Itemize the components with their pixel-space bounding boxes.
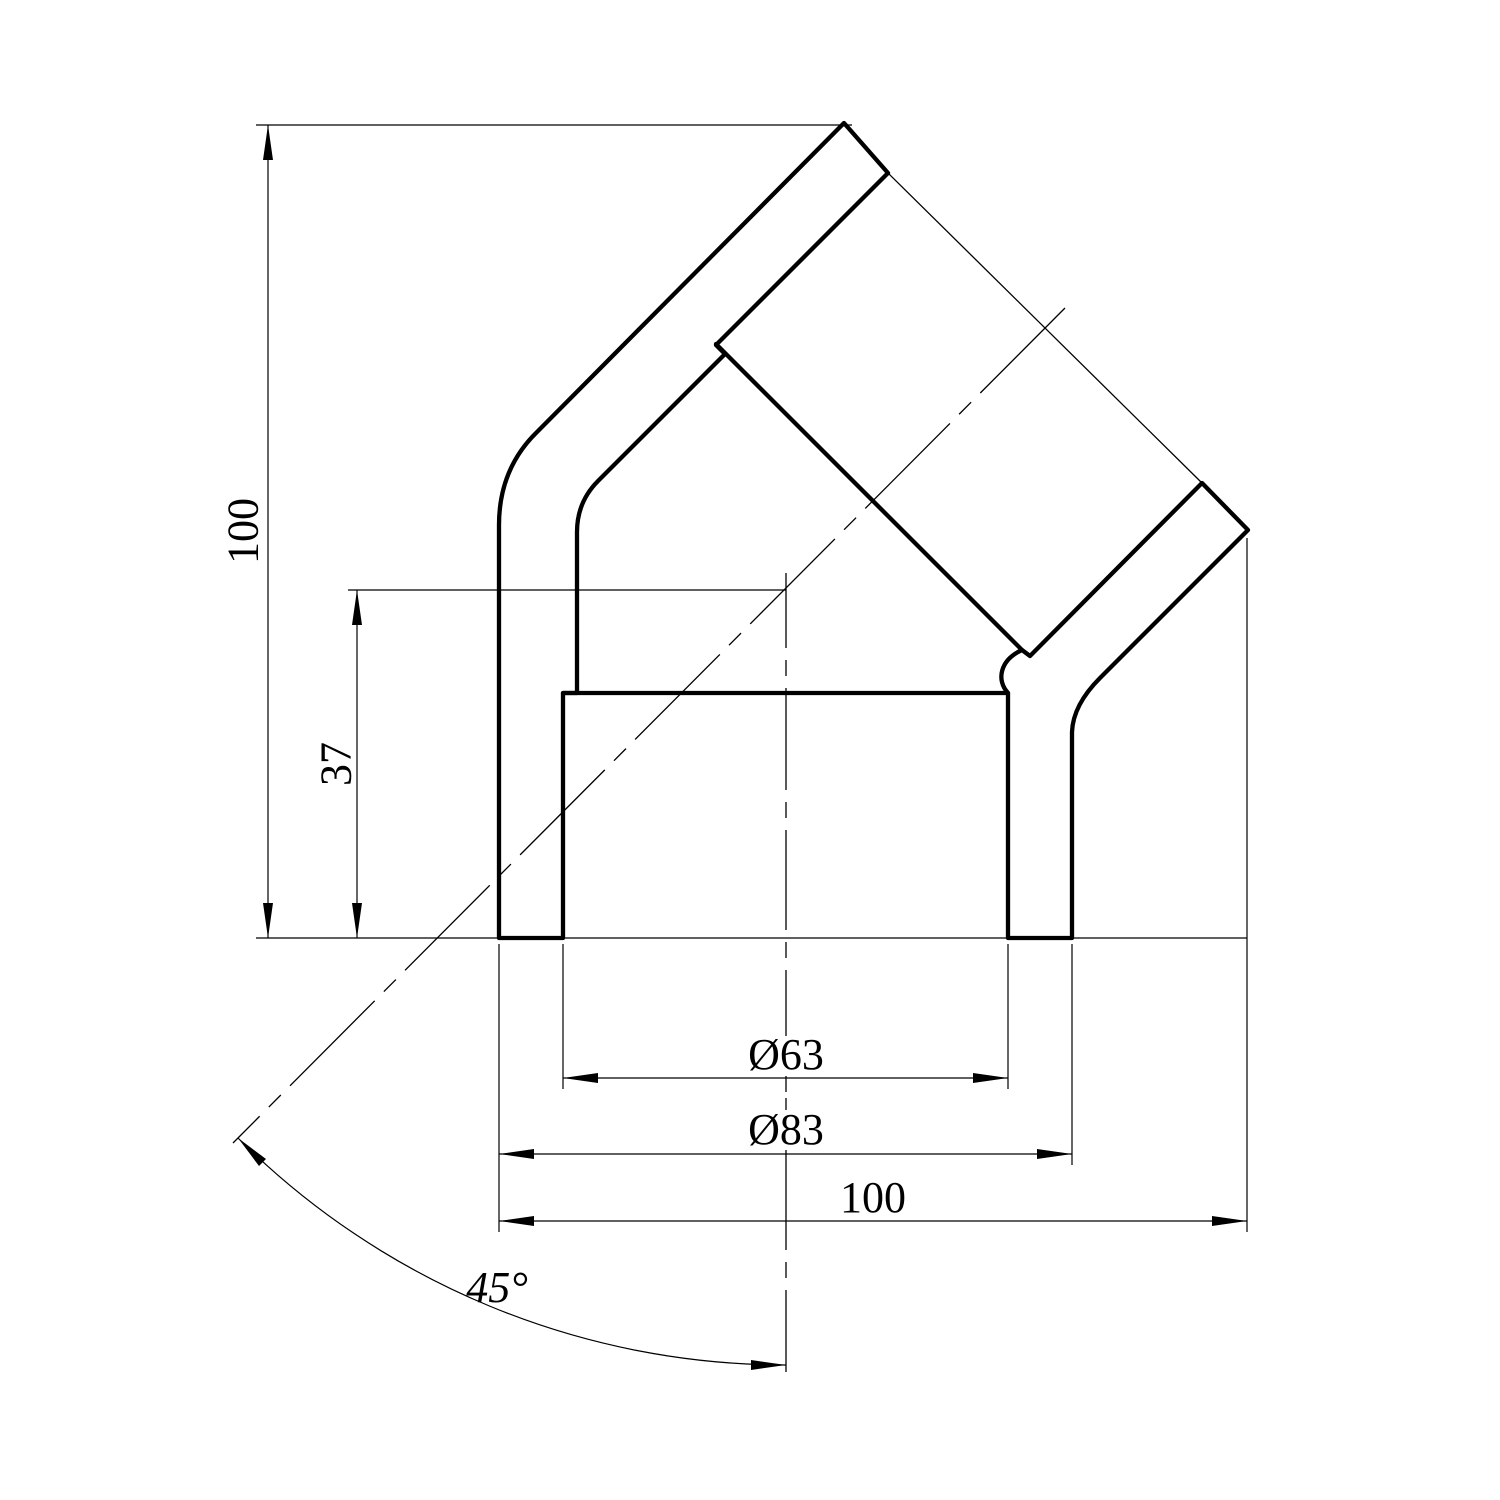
dim-branch-angle-label: 45° — [466, 1263, 528, 1312]
dim-center-to-end-label: 37 — [312, 742, 361, 786]
dim-overall-width-label: 100 — [840, 1173, 906, 1222]
elbow-technical-drawing: 100 37 Ø63 Ø83 100 45° — [0, 0, 1500, 1500]
dim-outer-diameter-label: Ø83 — [748, 1105, 824, 1154]
dim-overall-height-label: 100 — [219, 498, 268, 564]
dim-inner-diameter-label: Ø63 — [748, 1030, 824, 1079]
drawing-sheet: 100 37 Ø63 Ø83 100 45° — [0, 0, 1500, 1500]
paper-background — [0, 0, 1500, 1500]
